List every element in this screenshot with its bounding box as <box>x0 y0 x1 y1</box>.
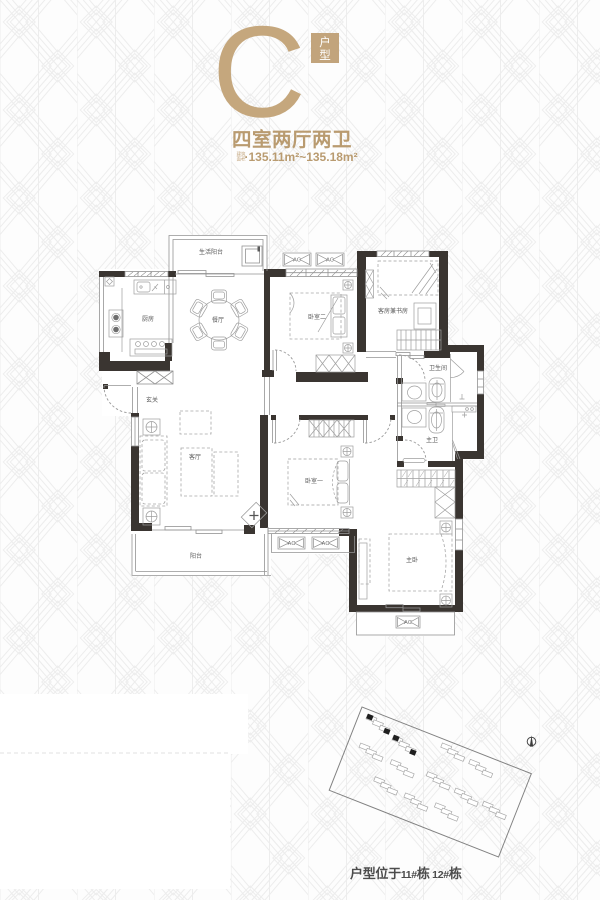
svg-text:户型位于11#栋 12#栋: 户型位于11#栋 12#栋 <box>350 866 462 881</box>
svg-text:卫生间: 卫生间 <box>429 364 447 372</box>
svg-text:厨房: 厨房 <box>142 315 154 323</box>
svg-text:户: 户 <box>319 35 331 49</box>
svg-text:客房兼书房: 客房兼书房 <box>378 307 408 315</box>
svg-text:AC: AC <box>404 620 412 626</box>
svg-text:卧室二: 卧室二 <box>308 313 326 321</box>
svg-text:玄关: 玄关 <box>146 396 158 404</box>
svg-text:四室两厅两卫: 四室两厅两卫 <box>232 128 352 151</box>
svg-text:生活阳台: 生活阳台 <box>199 248 223 256</box>
svg-text:AC: AC <box>326 258 334 264</box>
svg-text:型: 型 <box>319 48 331 62</box>
svg-text:AC: AC <box>288 541 296 547</box>
svg-text:·135.11m²~135.18m²: ·135.11m²~135.18m² <box>245 150 358 164</box>
svg-text:AC: AC <box>322 541 330 547</box>
svg-text:卧室一: 卧室一 <box>305 477 323 485</box>
svg-text:客厅: 客厅 <box>189 453 201 461</box>
svg-text:C: C <box>212 0 306 145</box>
svg-text:主卫: 主卫 <box>426 436 438 444</box>
svg-text:阳台: 阳台 <box>190 552 202 560</box>
svg-text:主卧: 主卧 <box>406 556 418 564</box>
svg-text:AC: AC <box>293 258 301 264</box>
svg-text:餐厅: 餐厅 <box>212 316 224 324</box>
